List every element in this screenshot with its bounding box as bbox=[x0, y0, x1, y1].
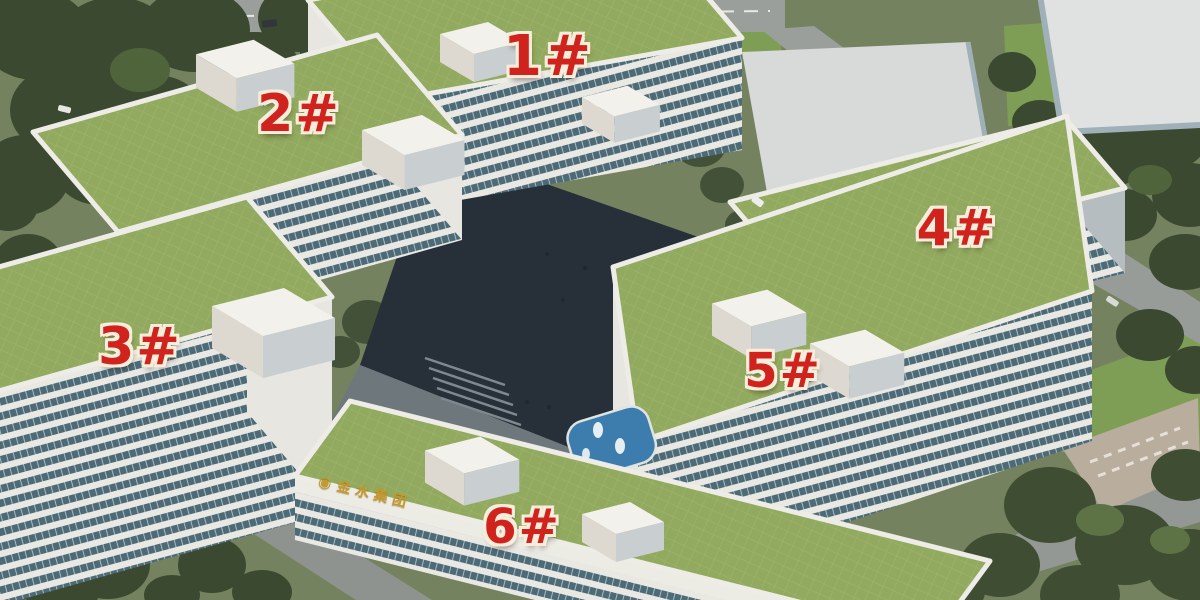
water-jet bbox=[593, 422, 603, 438]
building-label-4: 4# bbox=[917, 203, 998, 253]
water-jet bbox=[615, 438, 625, 454]
building-label-2: 2# bbox=[257, 88, 341, 140]
aerial-campus-rendering: 1# 2# 3# 4# 5# 6# ◉金水集团 bbox=[0, 0, 1200, 600]
logo-mark-icon: ◉ bbox=[317, 472, 334, 493]
building-label-3: 3# bbox=[98, 321, 182, 373]
building-label-5: 5# bbox=[744, 347, 822, 395]
scene-svg bbox=[0, 0, 1200, 600]
warehouse-building-b bbox=[1040, 0, 1200, 132]
building-label-1: 1# bbox=[503, 29, 593, 85]
building-label-6: 6# bbox=[483, 503, 561, 551]
